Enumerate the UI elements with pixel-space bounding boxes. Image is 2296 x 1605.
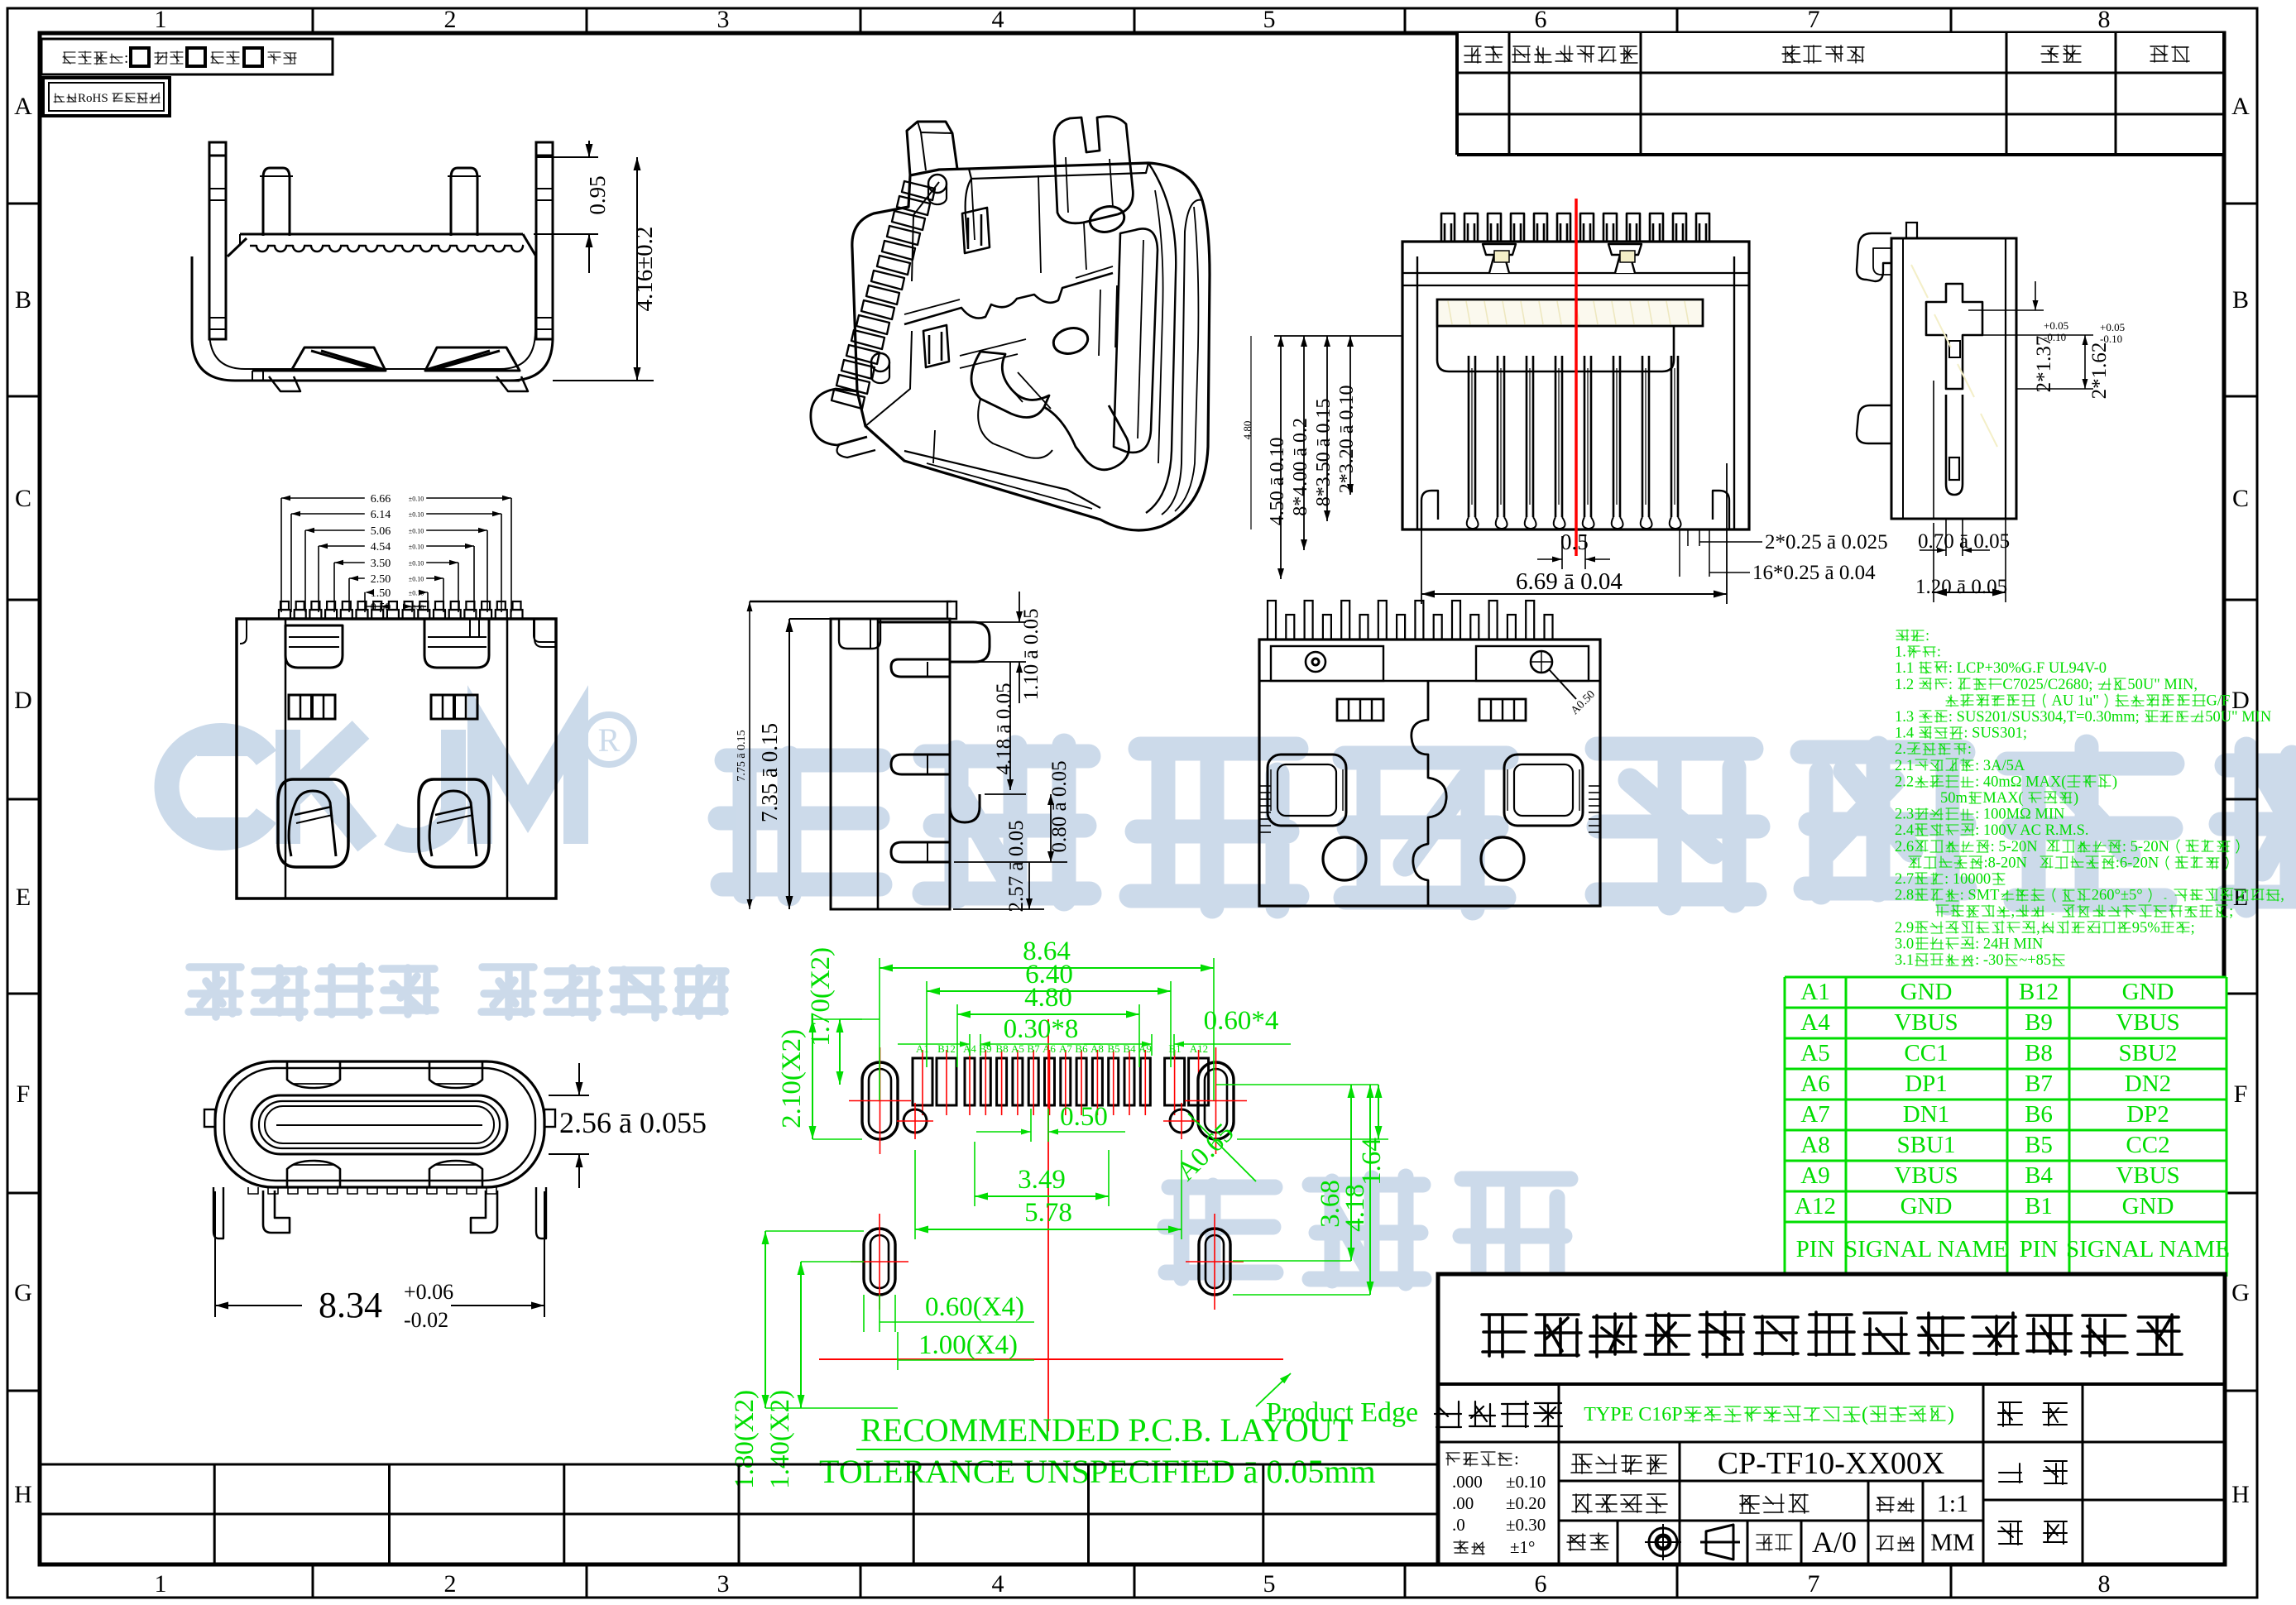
svg-text:): )	[1948, 1404, 1954, 1425]
svg-text:2.7: 2.7	[1895, 871, 1914, 888]
svg-text:B9: B9	[2025, 1009, 2053, 1036]
svg-text:: 10000: : 10000	[1944, 871, 1991, 888]
svg-text:4.18 ā 0.05: 4.18 ā 0.05	[993, 683, 1015, 774]
svg-text:B: B	[2232, 286, 2249, 314]
svg-text:B: B	[15, 286, 31, 314]
svg-text:±0.10: ±0.10	[1506, 1472, 1546, 1492]
svg-text:+0.06: +0.06	[404, 1280, 453, 1304]
svg-text:B5: B5	[2025, 1132, 2053, 1158]
svg-text:1.80(X2): 1.80(X2)	[730, 1390, 760, 1489]
svg-text:~+85: ~+85	[2019, 952, 2051, 969]
svg-text:8: 8	[2098, 1570, 2111, 1598]
svg-text:A/0: A/0	[1812, 1526, 1857, 1559]
svg-text:TYPE C16P: TYPE C16P	[1584, 1404, 1682, 1425]
svg-text:B7: B7	[2025, 1071, 2053, 1097]
svg-text:A8: A8	[1800, 1132, 1829, 1158]
svg-text:50U" MIN: 50U" MIN	[2205, 709, 2271, 726]
svg-text::: :	[1948, 677, 1953, 693]
svg-text:7.75 ā 0.15: 7.75 ā 0.15	[736, 730, 748, 781]
svg-text:2.2: 2.2	[1895, 774, 1914, 790]
svg-text:±1°: ±1°	[1510, 1537, 1535, 1557]
svg-text:: SUS301;: : SUS301;	[1963, 726, 2027, 742]
svg-text:CC2: CC2	[2126, 1132, 2169, 1158]
svg-text:2.57 ā 0.05: 2.57 ā 0.05	[1005, 820, 1028, 912]
svg-text:R: R	[598, 721, 621, 759]
svg-text::: :	[1968, 741, 1972, 758]
svg-text::: :	[1937, 644, 1941, 661]
svg-text:0.95: 0.95	[585, 175, 610, 214]
svg-text:.000: .000	[1452, 1472, 1483, 1492]
svg-text:CC1: CC1	[1904, 1040, 1948, 1066]
svg-text:PIN: PIN	[1796, 1236, 1835, 1262]
svg-text:50m: 50m	[1940, 790, 1968, 807]
svg-text:4.54: 4.54	[371, 541, 391, 553]
svg-text:1.50: 1.50	[371, 587, 391, 600]
svg-text:±0.10: ±0.10	[409, 544, 424, 551]
svg-text:2: 2	[444, 1570, 457, 1598]
svg-text:8*3.50 ā 0.15: 8*3.50 ā 0.15	[1313, 399, 1335, 507]
svg-text:C7025/C2680;: C7025/C2680;	[2002, 677, 2092, 693]
svg-text:7: 7	[1808, 1570, 1820, 1598]
svg-text:-0.10: -0.10	[2044, 331, 2066, 343]
svg-text:3.50: 3.50	[371, 558, 391, 570]
svg-text:E: E	[16, 884, 31, 911]
svg-text:G: G	[2231, 1279, 2250, 1306]
svg-text:6.69 ā 0.04: 6.69 ā 0.04	[1516, 568, 1623, 595]
svg-text:2: 2	[444, 6, 457, 33]
svg-text:.0: .0	[1452, 1515, 1465, 1535]
svg-text:: 3A/5A: : 3A/5A	[1975, 758, 2025, 774]
svg-text:1.00(X4): 1.00(X4)	[918, 1330, 1018, 1360]
svg-text:16*0.25 ā 0.04: 16*0.25 ā 0.04	[1752, 562, 1876, 584]
svg-text:: 100V AC R.M.S.: : 100V AC R.M.S.	[1975, 822, 2088, 839]
svg-text:: 5-20N: : 5-20N	[2122, 839, 2169, 855]
svg-text:±0.10: ±0.10	[409, 528, 424, 535]
svg-text:8*4.00 ā 0.2: 8*4.00 ā 0.2	[1290, 418, 1311, 516]
svg-text:0.60*4: 0.60*4	[1204, 1006, 1279, 1036]
svg-text:2*1.62: 2*1.62	[2088, 343, 2111, 400]
svg-text:2.1: 2.1	[1895, 758, 1914, 774]
svg-text:: 40mΩ MAX(: : 40mΩ MAX(	[1975, 774, 2066, 790]
svg-text:4: 4	[992, 1570, 1004, 1598]
svg-text:8.34: 8.34	[319, 1285, 382, 1325]
svg-text:A: A	[14, 93, 32, 120]
svg-text:MM: MM	[1930, 1529, 1974, 1556]
svg-text:: -30: : -30	[1975, 952, 2003, 969]
svg-text:3: 3	[717, 6, 730, 33]
svg-text:B8: B8	[2025, 1040, 2053, 1066]
svg-text:SIGNAL NAME: SIGNAL NAME	[2066, 1236, 2230, 1262]
svg-text:B1: B1	[2025, 1193, 2053, 1219]
svg-text:4.16±0.2: 4.16±0.2	[631, 227, 658, 312]
svg-text:(: (	[1862, 1404, 1868, 1425]
svg-text:3.0: 3.0	[1895, 936, 1914, 952]
svg-text:G: G	[14, 1279, 32, 1306]
svg-text:2.4: 2.4	[1895, 822, 1914, 839]
svg-text:2.6: 2.6	[1895, 839, 1914, 855]
svg-text:DN1: DN1	[1903, 1101, 1949, 1128]
svg-text:2.10(X2): 2.10(X2)	[777, 1029, 807, 1128]
svg-text:±0.10: ±0.10	[409, 511, 424, 519]
svg-text:3: 3	[717, 1570, 730, 1598]
svg-text:: LCP+30%G.F UL94V-0: : LCP+30%G.F UL94V-0	[1948, 660, 2107, 677]
svg-text:B12: B12	[2019, 979, 2059, 1005]
svg-text:,: ,	[2011, 903, 2016, 920]
svg-text:5.06: 5.06	[371, 525, 391, 538]
svg-text:6.14: 6.14	[371, 509, 391, 521]
svg-text:GND: GND	[2122, 1193, 2174, 1219]
svg-text::: :	[1514, 1449, 1519, 1468]
svg-text:A7: A7	[1800, 1101, 1829, 1128]
svg-text:2.: 2.	[1895, 741, 1906, 758]
svg-text:A: A	[2231, 93, 2250, 120]
svg-text:2*0.25 ā 0.025: 2*0.25 ā 0.025	[1765, 531, 1888, 553]
svg-text:0.60(X4): 0.60(X4)	[925, 1292, 1024, 1322]
svg-text:50U" MIN,: 50U" MIN,	[2127, 677, 2198, 693]
svg-text:1.4: 1.4	[1895, 726, 1914, 742]
svg-text:H: H	[2231, 1481, 2250, 1508]
svg-text:D: D	[14, 687, 32, 714]
svg-text:0.5: 0.5	[1560, 529, 1589, 554]
svg-text:DP1: DP1	[1905, 1071, 1948, 1097]
svg-text:1.1: 1.1	[1895, 660, 1914, 677]
svg-text:0.80 ā 0.05: 0.80 ā 0.05	[1048, 760, 1071, 852]
svg-text:CP-TF10-XX00X: CP-TF10-XX00X	[1718, 1446, 1944, 1481]
svg-text:A5: A5	[1800, 1040, 1829, 1066]
svg-text:95%: 95%	[2132, 920, 2160, 937]
svg-text:: SMT: : SMT	[1960, 888, 2000, 904]
svg-text:1: 1	[155, 1570, 167, 1598]
svg-text:PIN: PIN	[2020, 1236, 2059, 1262]
svg-text:F: F	[2234, 1080, 2248, 1108]
svg-text:3.49: 3.49	[1018, 1165, 1066, 1195]
svg-text:4.18: 4.18	[1340, 1184, 1370, 1232]
svg-text:RECOMMENDED P.C.B. LAYOUT: RECOMMENDED P.C.B. LAYOUT	[860, 1411, 1353, 1449]
svg-text:+0.05: +0.05	[2044, 319, 2068, 332]
svg-text:0.70 ā 0.05: 0.70 ā 0.05	[1918, 530, 2010, 553]
svg-text:VBUS: VBUS	[1894, 1162, 1958, 1189]
svg-text:A6: A6	[1800, 1071, 1829, 1097]
svg-text:;: ;	[2229, 903, 2233, 920]
svg-text:1.: 1.	[1895, 644, 1906, 661]
svg-text:;: ;	[2191, 920, 2195, 937]
svg-text:A4: A4	[1800, 1009, 1830, 1036]
svg-text:8: 8	[2098, 6, 2111, 33]
svg-text:SBU2: SBU2	[2119, 1040, 2178, 1066]
svg-text:TOLERANCE UNSPECIFIED ā 0.05m: TOLERANCE UNSPECIFIED ā 0.05mm	[819, 1453, 1376, 1490]
svg-text:MAX(: MAX(	[1982, 790, 2023, 807]
svg-text:: 24H MIN: : 24H MIN	[1975, 936, 2043, 952]
svg-text:B4: B4	[2025, 1162, 2053, 1189]
svg-text:7: 7	[1808, 6, 1820, 33]
svg-text:DP2: DP2	[2126, 1101, 2169, 1128]
svg-text:3.1: 3.1	[1895, 952, 1914, 969]
svg-text:1.10 ā 0.05: 1.10 ā 0.05	[1020, 608, 1043, 700]
svg-text:1.64: 1.64	[1357, 1138, 1387, 1186]
svg-text:2.50: 2.50	[371, 573, 391, 586]
svg-text:RoHS: RoHS	[78, 92, 108, 105]
svg-text:E: E	[2233, 884, 2248, 911]
svg-text:B6: B6	[2025, 1101, 2053, 1128]
svg-text:±0.10: ±0.10	[409, 590, 424, 597]
svg-text:2*3.20 ā 0.10: 2*3.20 ā 0.10	[1336, 386, 1358, 494]
svg-text:2.56 ā 0.055: 2.56 ā 0.055	[559, 1106, 707, 1139]
svg-text:A1: A1	[1800, 979, 1829, 1005]
svg-text:1: 1	[155, 6, 167, 33]
svg-text:5: 5	[1263, 1570, 1276, 1598]
svg-text:±0.10: ±0.10	[409, 496, 424, 503]
svg-text:-0.02: -0.02	[404, 1308, 448, 1332]
svg-text:F: F	[17, 1080, 31, 1108]
svg-text:-0.10: -0.10	[2100, 333, 2122, 345]
svg-text::6-20N: :6-20N	[2116, 855, 2159, 871]
svg-text:GND: GND	[2122, 979, 2174, 1005]
svg-text:A9: A9	[1800, 1162, 1829, 1189]
svg-text:2.9: 2.9	[1895, 920, 1914, 937]
svg-text:C: C	[15, 485, 31, 512]
svg-text:GND: GND	[1901, 979, 1953, 1005]
svg-text:): )	[2112, 774, 2117, 790]
svg-text:1.20 ā 0.05: 1.20 ā 0.05	[1915, 576, 2007, 598]
svg-text:C: C	[2232, 485, 2249, 512]
svg-text:AU 1u": AU 1u"	[2052, 692, 2099, 709]
svg-text:5.78: 5.78	[1024, 1198, 1072, 1228]
svg-text:VBUS: VBUS	[1894, 1009, 1958, 1036]
svg-text:±0.20: ±0.20	[1506, 1493, 1546, 1513]
svg-text:0.30*8: 0.30*8	[1004, 1014, 1079, 1044]
svg-text:,: ,	[2036, 920, 2040, 937]
svg-text:H: H	[14, 1481, 32, 1508]
svg-text:4: 4	[992, 6, 1004, 33]
svg-text:SBU1: SBU1	[1897, 1132, 1956, 1158]
svg-text:6: 6	[1535, 6, 1547, 33]
svg-text:2.8: 2.8	[1895, 888, 1914, 904]
svg-text:2.3: 2.3	[1895, 807, 1914, 823]
svg-text:5: 5	[1263, 6, 1276, 33]
svg-text:SIGNAL NAME: SIGNAL NAME	[1844, 1236, 2008, 1262]
svg-text:±0.10: ±0.10	[409, 576, 424, 583]
svg-text:1:1: 1:1	[1937, 1490, 1968, 1517]
svg-text:1.40(X2): 1.40(X2)	[765, 1390, 795, 1489]
svg-text:±0.10: ±0.10	[409, 560, 424, 568]
svg-text::: :	[124, 50, 128, 67]
svg-text::8-20N: :8-20N	[1984, 855, 2027, 871]
svg-text:DN2: DN2	[2125, 1071, 2171, 1097]
svg-text:±0.30: ±0.30	[1506, 1515, 1546, 1535]
svg-text:GND: GND	[1901, 1193, 1953, 1219]
svg-text:.00: .00	[1452, 1493, 1474, 1513]
svg-text:0.50: 0.50	[1060, 1102, 1108, 1132]
svg-text:+0.05: +0.05	[2100, 321, 2125, 333]
svg-text:: 100MΩ MIN: : 100MΩ MIN	[1975, 807, 2064, 823]
svg-text:4.80: 4.80	[1241, 421, 1253, 440]
svg-text:1.2: 1.2	[1895, 677, 1914, 693]
svg-text:: SUS201/SUS304,T=0.30mm;: : SUS201/SUS304,T=0.30mm;	[1948, 709, 2140, 726]
svg-text:1.3: 1.3	[1895, 709, 1914, 726]
svg-text:4.50 ā 0.10: 4.50 ā 0.10	[1267, 438, 1288, 526]
svg-text:): )	[2073, 790, 2078, 807]
svg-text:G/F: G/F	[2207, 692, 2231, 709]
svg-text:: 5-20N: : 5-20N	[1991, 839, 2038, 855]
svg-text:6.66: 6.66	[371, 493, 391, 505]
svg-text:6: 6	[1535, 1570, 1547, 1598]
svg-text:2*1.37: 2*1.37	[2033, 336, 2055, 393]
svg-text:260°±5°: 260°±5°	[2092, 888, 2143, 904]
svg-text:4.80: 4.80	[1024, 983, 1072, 1013]
svg-text:,: ,	[2280, 888, 2284, 904]
svg-text:A12: A12	[1795, 1193, 1836, 1219]
svg-text::: :	[1925, 628, 1929, 644]
svg-text:VBUS: VBUS	[2116, 1162, 2179, 1189]
svg-text:7.35 ā 0.15: 7.35 ā 0.15	[757, 723, 782, 822]
svg-text:VBUS: VBUS	[2116, 1009, 2179, 1036]
